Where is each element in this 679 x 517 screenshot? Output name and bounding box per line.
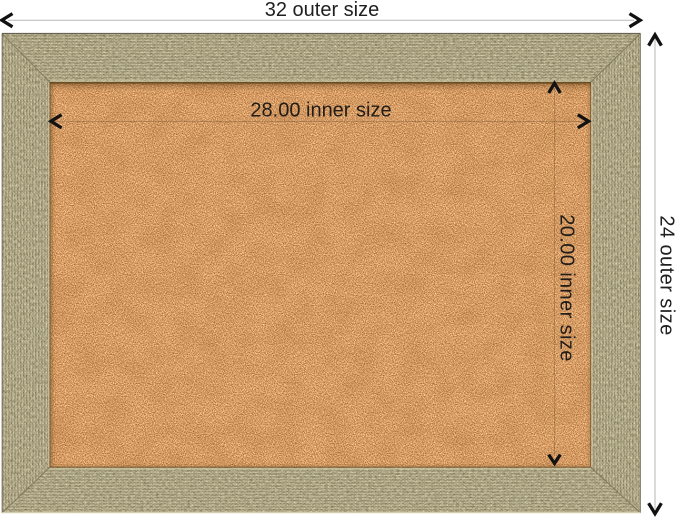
svg-text:20.00 inner size: 20.00 inner size [556, 214, 578, 362]
svg-text:24 outer size: 24 outer size [656, 215, 678, 335]
svg-text:28.00 inner size: 28.00 inner size [250, 100, 391, 122]
svg-text:32 outer size: 32 outer size [265, 0, 380, 21]
